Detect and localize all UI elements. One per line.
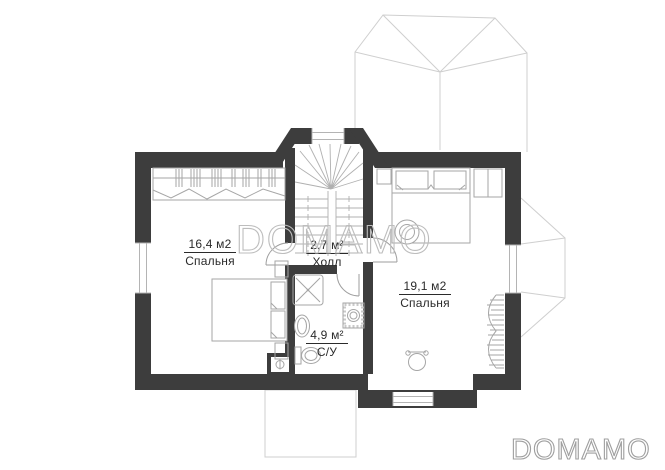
floor-plan-page: 16,4 м2 Спальня 2,7 м² Холл 4,9 м² С/У 1… xyxy=(0,0,665,470)
chimney xyxy=(267,353,295,377)
bay-roof-outline xyxy=(521,198,565,337)
window-right xyxy=(505,245,521,293)
lower-floor-outline xyxy=(265,390,356,457)
room-name: Спальня xyxy=(375,296,475,310)
plant-urn xyxy=(406,351,428,371)
room-area: 19,1 м2 xyxy=(399,279,450,295)
door-bathroom xyxy=(337,274,359,296)
wardrobe-right-bedroom xyxy=(487,295,504,368)
bed-left-bedroom xyxy=(212,261,288,359)
shower xyxy=(293,275,323,305)
watermark-center: DOMAMO xyxy=(236,218,432,263)
brand-logo: DOMAMO xyxy=(511,434,651,467)
roof-outline xyxy=(355,15,527,152)
wardrobe-left-bedroom xyxy=(153,168,285,200)
window-left xyxy=(135,243,151,293)
room-label-bathroom: 4,9 м² С/У xyxy=(296,328,358,360)
room-name: С/У xyxy=(296,345,358,359)
window-bottom-bay xyxy=(393,392,433,406)
nightstand xyxy=(377,169,391,184)
room-area: 16,4 м2 xyxy=(184,237,235,253)
washing-machine xyxy=(343,303,364,328)
room-label-bedroom-right: 19,1 м2 Спальня xyxy=(375,279,475,311)
window-stair-bay xyxy=(312,128,344,144)
room-area: 4,9 м² xyxy=(306,328,347,344)
